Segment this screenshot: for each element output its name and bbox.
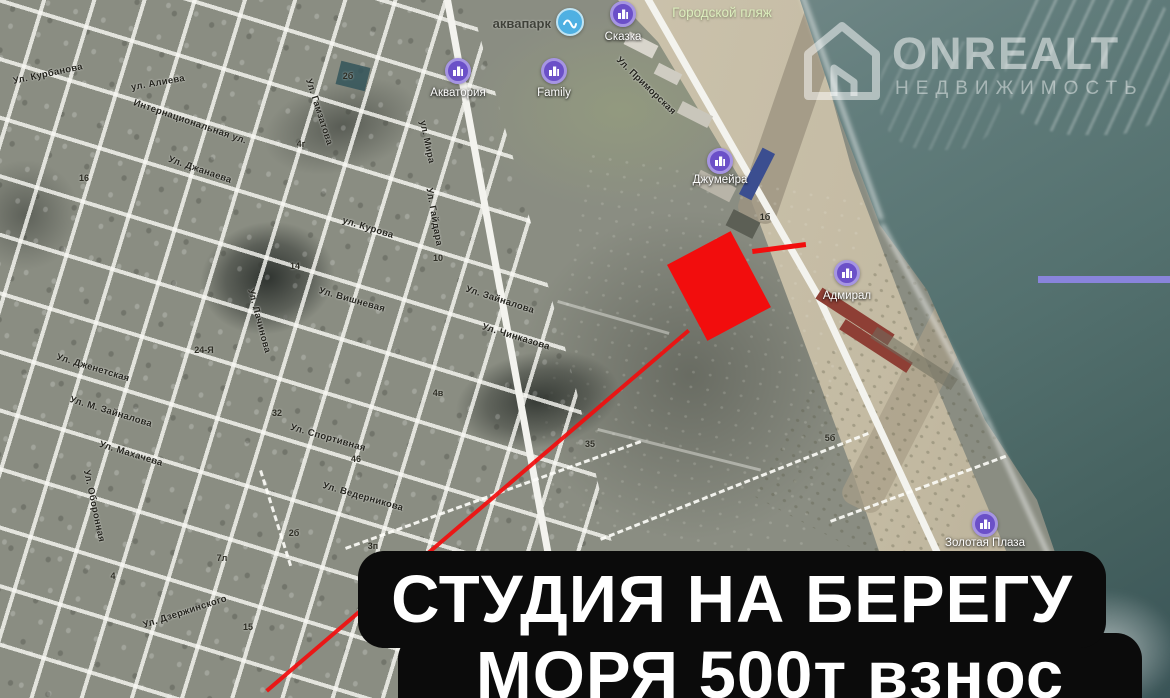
building-icon [617,8,629,20]
plot-number-label: 4в [433,388,444,398]
building-icon [841,267,853,279]
pin-label: Сказка [605,31,642,43]
street-label: ул. Алиева [130,73,186,93]
residential-complex-pin [541,58,567,84]
caption-banner-line1: СТУДИЯ НА БЕРЕГУ [358,551,1106,648]
plot-number-label: 1б [760,212,771,222]
plot-number-label: 14 [290,261,300,271]
street-label: Ул. Зайналова [464,284,535,317]
residential-complex-pin [707,148,733,174]
street-label: Ул. Гамзатова [303,77,335,146]
plot-number-label: 4 [110,571,115,581]
building-icon [452,65,464,77]
street-label: Интернациональная ул. [132,97,248,146]
street-label: Ул. Дзержинского [142,593,229,631]
pin-label: Family [537,87,571,99]
street-label: Ул. Дженетская [55,352,131,385]
street-label: ул. Мира [417,119,437,164]
street-label: Ул. Лачинова [245,288,273,355]
building-icon [979,518,991,530]
building-icon [548,65,560,77]
plot-number-label: 32 [272,408,282,418]
brand-subtitle: НЕДВИЖИМОСТЬ [895,78,1144,100]
street-label: Ул. Вишневая [318,285,387,314]
residential-complex-pin [610,1,636,27]
plot-number-label: 7л [217,553,228,563]
residential-complex-pin [972,511,998,537]
building-icon [714,155,726,167]
street-label: Ул. Оборонная [81,469,107,543]
street-label: Ул. Ведерникова [321,480,404,514]
plot-number-label: 2б [289,528,300,538]
street-label: Ул. Курбанова [12,61,84,87]
pin-label: Акватория [430,87,485,99]
pin-label: Золотая Плаза [945,537,1025,549]
plot-number-label: 2б [343,71,354,81]
plot-number-label: 4г [297,139,306,149]
residential-complex-pin [445,58,471,84]
plot-number-label: 3п [368,541,378,551]
plot-number-label: 5б [825,433,836,443]
plot-number-label: 35 [585,439,595,449]
street-label: Ул. Спортивная [289,422,367,454]
plot-number-label: 10 [433,253,443,263]
street-label: Ул. М. Зайналова [69,394,154,429]
brand-watermark: ONREALT НЕДВИЖИМОСТЬ [796,16,1156,108]
plot-number-label: 16 [79,173,89,183]
house-logo-icon [802,20,882,102]
pin-label: Адмирал [823,290,871,302]
street-label: Ул. Приморская [614,55,678,118]
plot-number-label: 15 [243,622,253,632]
caption-text-line1: СТУДИЯ НА БЕРЕГУ [391,561,1073,638]
residential-complex-pin [834,260,860,286]
street-label: Ул. Чинказова [481,321,551,352]
plot-number-label: 24-Я [194,345,213,355]
map-flyer: аквапарк Городской пляж Ул. Курбановаул.… [0,0,1170,698]
street-label: ул. Курова [341,215,395,241]
plot-number-label: 46 [351,454,361,464]
pin-label: Джумейра [693,174,748,186]
street-label: Ул. Гайдара [423,187,444,247]
street-label: Ул. Джанаева [167,154,233,186]
brand-name: ONREALT [892,28,1120,80]
street-label: Ул. Махачева [98,439,164,469]
